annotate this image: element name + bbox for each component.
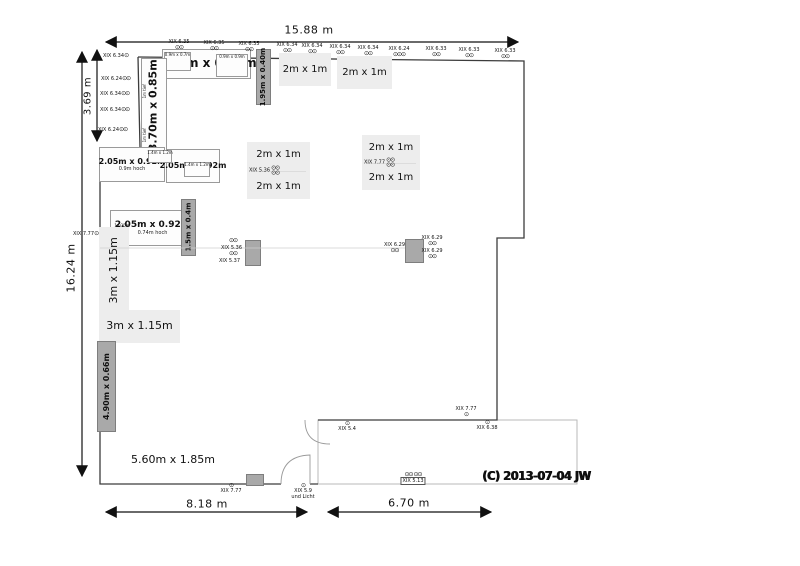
table-pair-center-bottom-label: 2m x 1m — [247, 181, 310, 192]
door-arc-inner — [305, 420, 330, 444]
table-pair-right: 2m x 1mXIX 7.77⊙⊙⊙⊙2m x 1m — [362, 135, 420, 190]
utility-box-a — [245, 240, 261, 266]
dimension-left-upper-label: 3.69 m — [83, 77, 94, 115]
wall-annotation: XIX 6.34⊙⊙ — [357, 45, 378, 56]
outer-wall-left — [100, 57, 318, 484]
wall-annotation: XIX 6.34⊙⊙ — [301, 43, 322, 54]
cabinet-sub-left-label: 0.9m x 0.7m — [165, 53, 190, 58]
wall-annotation: XIX 6.34⊙⊙ — [100, 91, 129, 97]
wall-annotation: XIX 6.34⊙ — [103, 53, 128, 59]
sideboard-a-sublabel: 0.9m hoch — [119, 166, 146, 172]
sideboard-sub-1-label: 1.4m x 1.2m — [147, 151, 172, 156]
floor-plan: 15.88 m 16.24 m 3.69 m 8.18 m 6.70 m (C)… — [0, 0, 800, 566]
sideboard-c-sublabel: 0.74m hoch — [138, 230, 168, 236]
wall-annotation: XIX 6.33⊙⊙ — [425, 46, 446, 57]
dimension-bottom-left-label: 8.18 m — [186, 498, 228, 511]
sideboard-sub-2: 1.4m x 1.2m — [184, 162, 210, 177]
dimension-bottom-right-label: 6.70 m — [388, 497, 430, 510]
door-arc-bottom — [281, 455, 310, 484]
table-pair-right-socket-label: XIX 7.77⊙⊙⊙⊙ — [364, 157, 394, 168]
shelf-15x04-label: 1.5m x 0.4m — [184, 203, 192, 252]
wall-annotation: ⊙XIX 7.77 — [220, 483, 241, 494]
area-560-label-label: 5.60m x 1.85m — [131, 454, 215, 467]
wall-annotation: XIX 6.34⊙⊙ — [276, 42, 297, 53]
dimension-top-label: 15.88 m — [284, 24, 333, 37]
wall-annotation: XIX 6.34⊙⊙ — [100, 107, 129, 113]
wall-annotation: XIX 5.37 — [219, 258, 240, 264]
wall-annotation: XIX 7.77⊙ — [455, 406, 476, 417]
wall-annotation: XIX 6.29⊙⊙ — [421, 248, 442, 259]
area-3m-horizontal-label: 3m x 1.15m — [106, 320, 172, 333]
wall-annotation: XIX 6.33⊙⊙ — [494, 48, 515, 59]
wall-annotation: ⊙XIX 6.38 — [476, 420, 497, 431]
area-3m-vertical-label: 3m x 1.15m — [108, 237, 121, 303]
wall-annotation: XIX 6.34⊙⊙ — [329, 44, 350, 55]
wall-annotation: XIX 6.24⊙⊙ — [98, 127, 127, 133]
shelf-490x066: 4.90m x 0.66m — [97, 341, 116, 432]
shelf-490x066-label: 4.90m x 0.66m — [102, 353, 111, 420]
cabinet-sub-left: 0.9m x 0.7m — [164, 52, 191, 71]
wall-annotation: XIX 6.35⊙⊙ — [168, 39, 189, 50]
wall-annotation: ⊙XIX 5.4 — [338, 421, 356, 432]
shelf-195x040-label: 1.95m x 0.40m — [259, 48, 267, 107]
wall-annotation: ⊙⊙ — [229, 251, 237, 256]
cabinet-sub-right: 0.9m x 0.9m — [216, 54, 248, 77]
copyright-stamp: (C) 2013-07-04 JW — [482, 469, 590, 483]
wall-annotation: XIX 6.24⊙⊙⊙ — [388, 46, 409, 57]
cabinet-sub-right-label: 0.9m x 0.9m — [219, 55, 244, 60]
table-pair-center: 2m x 1mXIX 5.36⊙⊙⊙⊙2m x 1m — [247, 142, 310, 199]
wardrobe-note-bottom-label: 1m tief — [143, 128, 148, 142]
wall-annotation: XIX 6.35⊙⊙ — [238, 41, 259, 52]
table-2x1-a-label: 2m x 1m — [283, 64, 327, 76]
table-pair-right-bottom-label: 2m x 1m — [362, 172, 420, 183]
table-pair-center-socket-label: XIX 5.36⊙⊙⊙⊙ — [249, 165, 279, 176]
wall-annotation: XIX 6.24⊙⊙ — [101, 76, 130, 82]
shelf-15x04: 1.5m x 0.4m — [181, 199, 196, 256]
area-560-label: 5.60m x 1.85m — [133, 452, 213, 468]
sideboard-sub-1: 1.4m x 1.2m — [148, 150, 172, 163]
table-2x1-b-label: 2m x 1m — [342, 67, 386, 79]
dimension-left-total-label: 16.24 m — [65, 243, 78, 292]
wall-annotation: XIX 7.77⊙ — [73, 231, 98, 237]
table-pair-center-top-label: 2m x 1m — [247, 149, 310, 160]
wardrobe-note-top: 1m tief — [141, 78, 150, 104]
wall-annotation: XIX 6.33⊙⊙ — [458, 47, 479, 58]
wall-annotation: ⊙⊙ ⊙⊙XIX 5.13 — [400, 472, 425, 485]
sideboard-sub-2-label: 1.4m x 1.2m — [184, 163, 209, 168]
wall-annotation: XIX 6.29⊙⊙ — [384, 242, 405, 253]
utility-box-c — [246, 474, 264, 486]
wall-annotation: ⊙XIX 5.9und Licht — [291, 483, 314, 500]
wall-annotation: ⊙⊙ — [229, 238, 237, 243]
wall-annotation: XIX 6.29⊙⊙ — [421, 235, 442, 246]
table-2x1-a: 2m x 1m — [279, 53, 331, 86]
table-pair-right-top-label: 2m x 1m — [362, 142, 420, 153]
wardrobe-note-bottom: 1m tief — [141, 122, 150, 148]
wardrobe-note-top-label: 1m tief — [143, 84, 148, 98]
area-3m-vertical: 3m x 1.15m — [99, 227, 129, 313]
table-2x1-b: 2m x 1m — [337, 56, 392, 89]
shelf-195x040: 1.95m x 0.40m — [256, 49, 271, 105]
wall-annotation: XIX 6.35⊙⊙ — [203, 40, 224, 51]
area-3m-horizontal: 3m x 1.15m — [99, 310, 180, 343]
